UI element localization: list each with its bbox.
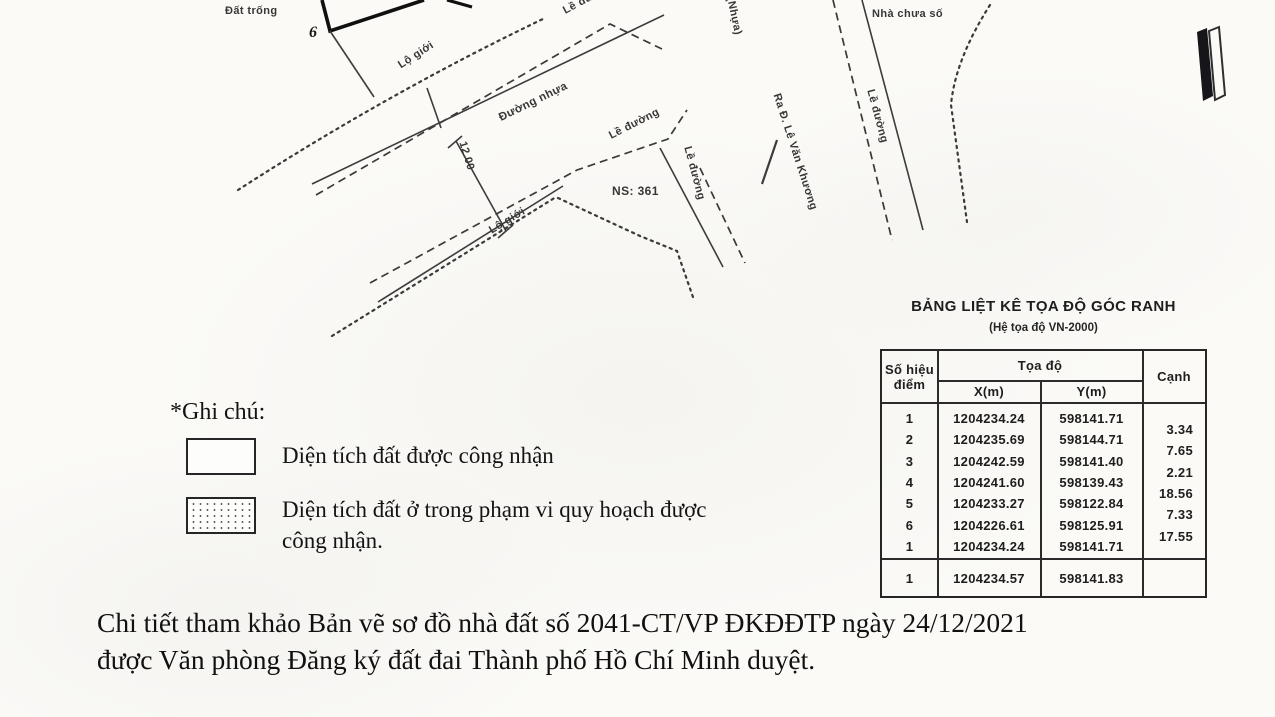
curb-dashed-upper — [316, 24, 662, 195]
header-y: Y(m) — [1041, 380, 1142, 402]
table-hline-header — [882, 402, 1205, 404]
x-value: 1204242.59 — [938, 451, 1040, 472]
legend-swatch-plain — [186, 438, 256, 475]
planning-dotted-corner — [558, 198, 694, 300]
point-number: 4 — [882, 472, 937, 493]
table-title: BẢNG LIỆT KÊ TỌA ĐỘ GÓC RANH — [880, 298, 1207, 315]
parcel-boundary-stub — [447, 0, 472, 7]
edge-length: 17.55 — [1143, 525, 1205, 546]
x-value: 1204235.69 — [938, 429, 1040, 450]
label-ns-361: NS: 361 — [612, 184, 659, 198]
x-value: 1204226.61 — [938, 514, 1040, 535]
edge-length: 2.21 — [1143, 462, 1205, 483]
legend-heading: *Ghi chú: — [170, 399, 265, 426]
road-edge-upper-solid — [312, 15, 664, 184]
site-plan: Đất trống 6 Lộ giới Lề đường Đường nhựa … — [0, 0, 1275, 345]
point-number: 1 — [882, 408, 937, 429]
edge-length: 3.34 — [1143, 419, 1205, 440]
y-value: 598141.71 — [1041, 408, 1142, 429]
column-x-values: 1204234.24 1204235.69 1204242.59 1204241… — [938, 408, 1040, 557]
label-point-6: 6 — [309, 24, 317, 42]
parcel-boundary-line — [322, 0, 424, 31]
y-value: 598141.71 — [1041, 536, 1142, 557]
curb-dashed-side-left — [700, 168, 745, 263]
legend-item-planning-land: Diện tích đất ở trong phạm vi quy hoạch … — [282, 494, 732, 556]
header-x: X(m) — [938, 380, 1040, 402]
footer-line-1: Chi tiết tham khảo Bản vẽ sơ đồ nhà đất … — [97, 607, 1028, 638]
lo-gioi-leader — [427, 88, 441, 128]
y-value: 598141.40 — [1041, 451, 1142, 472]
point-number: 6 — [882, 514, 937, 535]
x-value: 1204234.24 — [938, 408, 1040, 429]
planning-dotted-right — [951, 5, 990, 222]
footer-note: Chi tiết tham khảo Bản vẽ sơ đồ nhà đất … — [97, 604, 1237, 678]
road-edge-lower-solid — [378, 186, 563, 302]
y-value: 598125.91 — [1041, 514, 1142, 535]
direction-arrow — [762, 140, 777, 184]
table-subtitle: (Hệ tọa độ VN-2000) — [880, 322, 1207, 334]
summary-y-value: 598141.83 — [1041, 560, 1142, 596]
summary-x-value: 1204234.57 — [938, 560, 1040, 596]
label-dat-trong: Đất trống — [225, 5, 277, 17]
y-value: 598144.71 — [1041, 429, 1142, 450]
legend-swatch-dotted — [186, 497, 256, 534]
header-point-number: Số hiệu điểm — [882, 351, 937, 402]
point-number: 3 — [882, 451, 937, 472]
column-y-values: 598141.71 598144.71 598141.40 598139.43 … — [1041, 408, 1142, 557]
edge-length: 7.33 — [1143, 504, 1205, 525]
summary-point-number: 1 — [882, 560, 937, 596]
point-number: 1 — [882, 536, 937, 557]
edge-length: 7.65 — [1143, 440, 1205, 461]
column-point-numbers: 1 2 3 4 5 6 1 — [882, 408, 937, 557]
x-value: 1204234.24 — [938, 536, 1040, 557]
column-edge-lengths: 3.34 7.65 2.21 18.56 7.33 17.55 — [1143, 419, 1205, 547]
header-edge: Cạnh — [1143, 351, 1205, 402]
point-number: 5 — [882, 493, 937, 514]
y-value: 598139.43 — [1041, 472, 1142, 493]
coordinate-table: Số hiệu điểm Tọa độ X(m) Y(m) Cạnh 1 2 3… — [880, 349, 1207, 598]
boundary-leader-line — [330, 31, 374, 97]
site-plan-lines — [0, 0, 1275, 345]
x-value: 1204241.60 — [938, 472, 1040, 493]
legend-item-recognized-land: Diện tích đất được công nhận — [282, 440, 554, 471]
header-coordinates: Tọa độ — [938, 351, 1142, 380]
x-value: 1204233.27 — [938, 493, 1040, 514]
point-number: 2 — [882, 429, 937, 450]
edge-length: 18.56 — [1143, 483, 1205, 504]
scanned-land-survey-page: Đất trống 6 Lộ giới Lề đường Đường nhựa … — [0, 0, 1275, 717]
planning-dotted-upper — [238, 18, 545, 190]
y-value: 598122.84 — [1041, 493, 1142, 514]
label-nha-chua-so: Nhà chưa số — [872, 8, 943, 20]
footer-line-2: được Văn phòng Đăng ký đất đai Thành phố… — [97, 644, 815, 675]
